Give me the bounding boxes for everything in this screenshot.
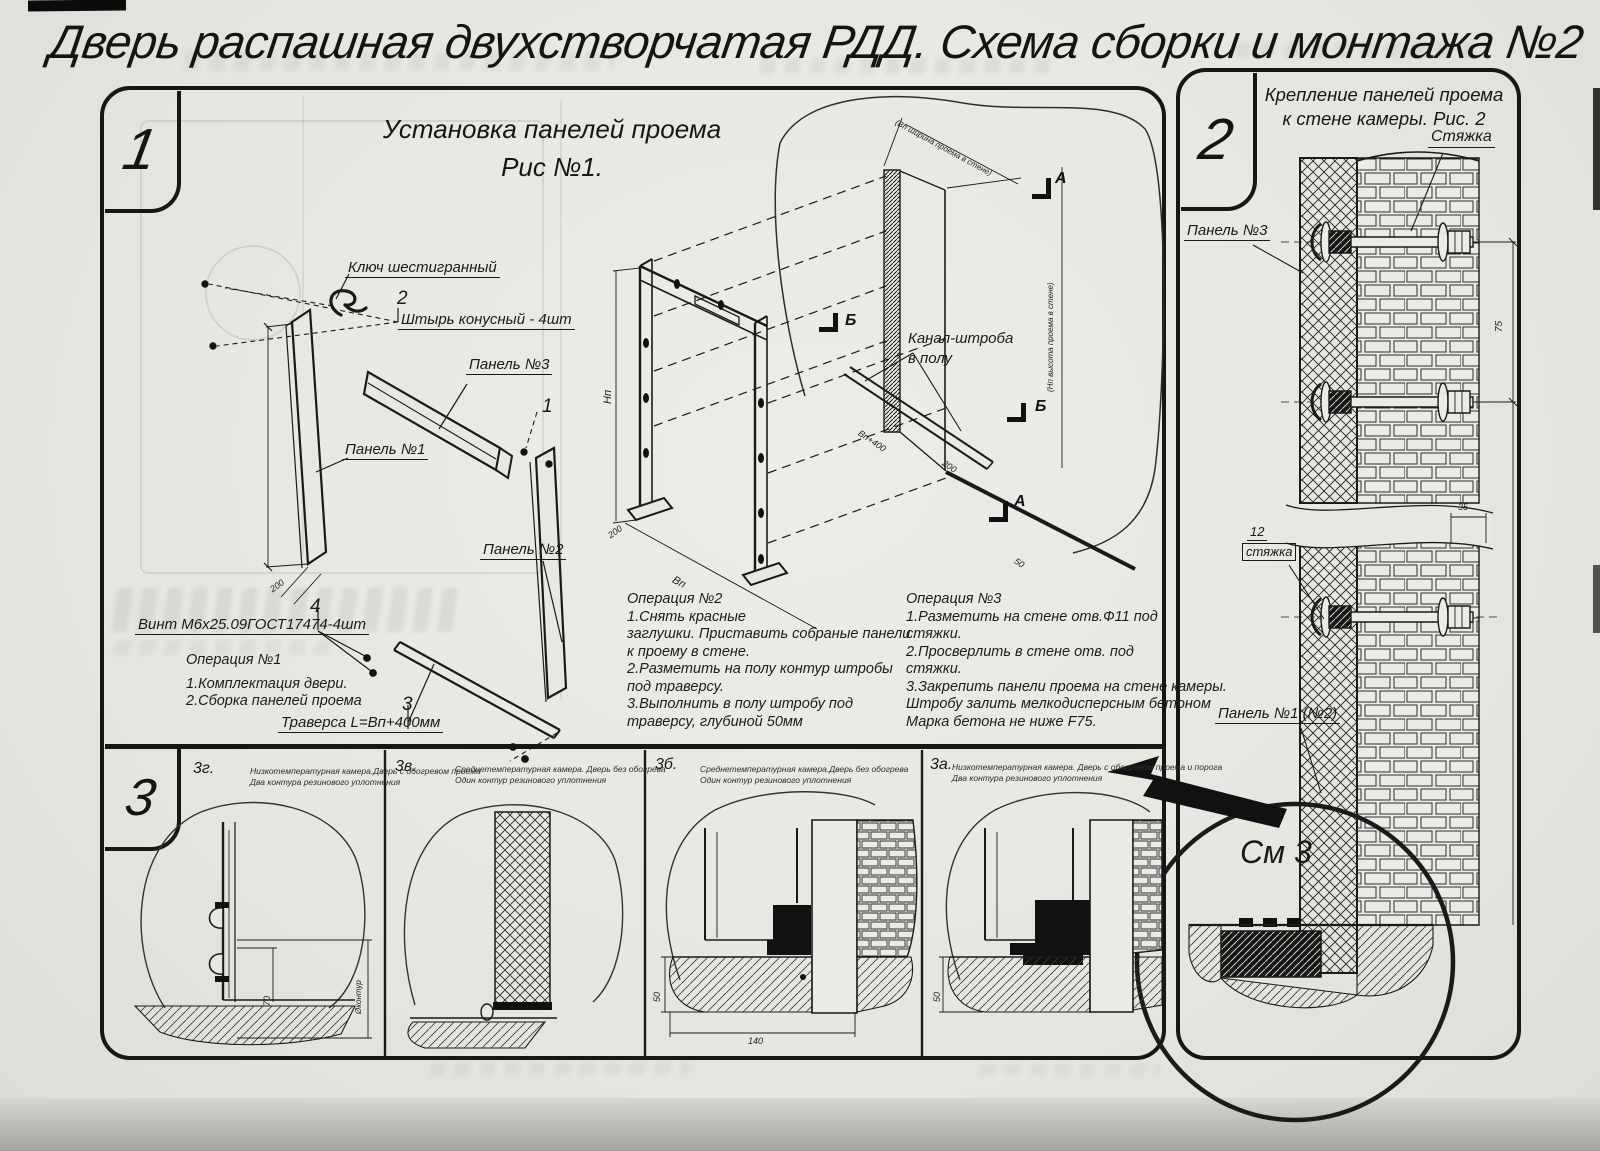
callout-2: 2	[397, 288, 408, 310]
detail-3a-id: 3а.	[930, 756, 952, 774]
label-panel12: Панель №1 (№2)	[1215, 705, 1340, 724]
detail-3v-caption: Среднетемпературная камера. Дверь без об…	[455, 764, 666, 785]
ghost-text-bleed	[979, 1064, 1161, 1076]
callout-1: 1	[542, 396, 553, 418]
scan-edge-mark	[1593, 565, 1600, 633]
label-panel1: Панель №1	[342, 441, 428, 460]
label-panel3-s2: Панель №3	[1184, 222, 1270, 241]
operation-3-line: стяжки.	[906, 661, 1227, 679]
section2-heading-line1: Крепление панелей проема	[1258, 84, 1510, 106]
section2-heading-line2: к стене камеры. Рис. 2	[1258, 108, 1510, 130]
dim-height-note: (Hп высота проема в стене)	[1046, 282, 1055, 392]
wall-and-panel-section	[1286, 152, 1493, 973]
operation-3-line: 2.Просверлить в стене отв. под	[906, 644, 1227, 662]
operation-2-line: 3.Выполнить в полу штробу под	[627, 696, 910, 714]
operation-3-line: 3.Закрепить панели проема на стене камер…	[906, 679, 1227, 697]
label-screw: Винт М6х25.09ГОСТ17474-4шт	[135, 616, 369, 635]
section1-heading-line1: Установка панелей проема	[372, 114, 732, 145]
operation-3-line: Марка бетона не ниже F75.	[906, 714, 1227, 732]
operation-2-line: 2.Разметить на полу контур штробы	[627, 661, 910, 679]
operation-3-title: Операция №3	[906, 591, 1227, 609]
section-mark-b1: Б	[845, 312, 856, 330]
detail-3b-caption: Среднетемпературная камера.Дверь без обо…	[700, 764, 908, 785]
operation-3-block: Операция №3 1.Разметить на стене отв.Ф11…	[906, 591, 1227, 731]
operation-2-line: траверсу, глубиной 50мм	[627, 714, 910, 732]
operation-2-line: под траверсу.	[627, 679, 910, 697]
label-tie12-text: стяжка	[1242, 543, 1296, 561]
dim-50-3a: 50	[932, 992, 942, 1002]
scan-edge-mark	[1593, 88, 1600, 210]
label-panel3: Панель №3	[466, 356, 552, 375]
label-channel-line2: в полу	[908, 350, 952, 367]
detail-3b-drawing	[661, 792, 917, 1037]
operation-3-line: 1.Разметить на стене отв.Ф11 под	[906, 609, 1227, 627]
label-traverse: Траверса L=Bп+400мм	[278, 714, 443, 733]
caption-line: Низкотемпературная камера.Дверь с обогре…	[250, 766, 481, 777]
scanned-drawing-page: { "title": "Дверь распашная двухстворчат…	[0, 0, 1600, 1151]
operation-1-line: 1.Комплектация двери.	[186, 676, 362, 694]
dim-70-3g: 70	[262, 996, 272, 1006]
caption-line: Один контур резинового уплотнения	[700, 775, 908, 786]
operation-2-line: к проему в стене.	[627, 644, 910, 662]
callout-4: 4	[310, 596, 321, 618]
detail-3g-caption: Низкотемпературная камера.Дверь с обогре…	[250, 766, 481, 787]
dim-hp: Hп	[602, 390, 614, 404]
dim-140-3b: 140	[748, 1036, 763, 1046]
label-channel-line1: Канал-штроба	[908, 330, 1013, 347]
label-tie: Стяжка	[1428, 128, 1495, 148]
detail-3v-id: 3в.	[395, 758, 417, 776]
dim-50-3b: 50	[652, 992, 662, 1002]
detail-3g-drawing	[135, 802, 372, 1044]
label-panel2: Панель №2	[480, 541, 566, 560]
operation-2-line: 1.Снять красные	[627, 609, 910, 627]
caption-line: Один контур резинового уплотнения	[455, 775, 666, 786]
caption-line: Два контура резинового уплотнения	[952, 773, 1222, 784]
section-mark-a1: А	[1055, 170, 1067, 188]
caption-line: Низкотемпературная камера. Дверь с обогр…	[952, 762, 1222, 773]
section-mark-a2: А	[1014, 493, 1026, 511]
section-mark-b2: Б	[1035, 398, 1046, 416]
operation-3-line: стяжки.	[906, 626, 1227, 644]
detail-3g-id: 3г.	[193, 760, 214, 778]
operation-1-line: 2.Сборка панелей проема	[186, 693, 362, 711]
scan-edge-mark	[28, 0, 126, 12]
operation-2-line: заглушки. Приставить собраные панели	[627, 626, 910, 644]
detail-3a-caption: Низкотемпературная камера. Дверь с обогр…	[952, 762, 1222, 783]
detail-3b-id: 3б.	[655, 756, 677, 774]
caption-line: Среднетемпературная камера.Дверь без обо…	[700, 764, 908, 775]
operation-2-block: Операция №2 1.Снять красные заглушки. Пр…	[627, 591, 910, 731]
operation-2-title: Операция №2	[627, 591, 910, 609]
hex-key-icon	[331, 291, 366, 315]
operation-1-title: Операция №1	[186, 652, 362, 670]
callout-3: 3	[402, 694, 413, 716]
dim-35: 35	[1458, 502, 1468, 512]
label-tie12-number: 12	[1247, 524, 1267, 541]
operation-1-block: Операция №1 1.Комплектация двери. 2.Сбор…	[186, 652, 362, 711]
label-hex-key: Ключ шестигранный	[345, 259, 500, 278]
section1-heading-line2: Рис №1.	[372, 152, 732, 183]
caption-line: Два контура резинового уплотнения	[250, 777, 481, 788]
dim-contour-3g: Øконтур	[354, 980, 363, 1014]
section3-drawing	[105, 750, 1163, 1056]
label-pin: Штырь конусный - 4шт	[398, 311, 575, 330]
dim-75: 75	[1494, 321, 1505, 332]
drawing-title: Дверь распашная двухстворчатая РДД. Схем…	[46, 14, 1574, 69]
label-see-detail-3: См 3	[1240, 834, 1312, 871]
section1-3-divider	[105, 744, 1163, 749]
detail-3v-drawing	[404, 805, 622, 1048]
ghost-text-bleed	[429, 1062, 691, 1075]
caption-line: Среднетемпературная камера. Дверь без об…	[455, 764, 666, 775]
operation-3-line: Штробу залить мелкодисперсным бетоном	[906, 696, 1227, 714]
